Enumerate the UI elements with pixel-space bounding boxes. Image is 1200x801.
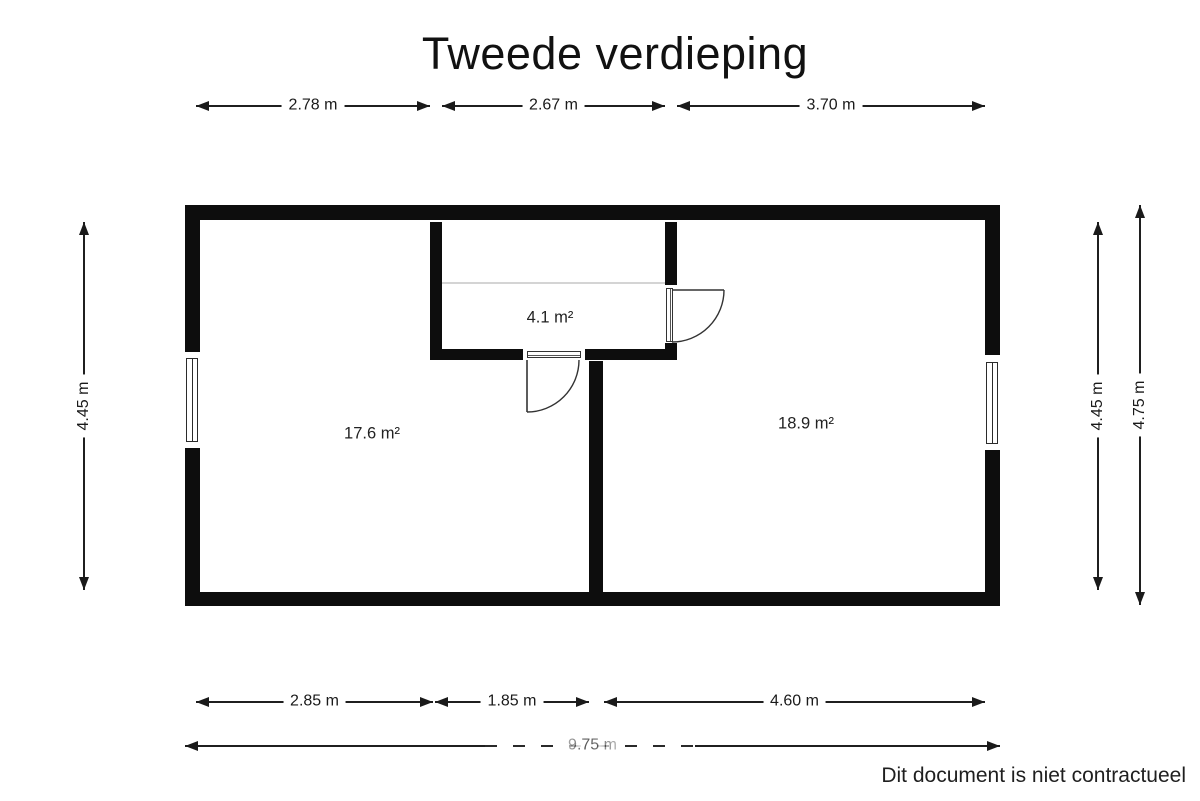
dimension-label: 2.78 m — [282, 97, 345, 115]
door-arc-right — [672, 290, 724, 342]
room-area-label-right: 18.9 m² — [778, 415, 834, 434]
dimension-right-inner-height: 4.45 m — [1093, 222, 1103, 590]
door-swing-layer — [0, 0, 1200, 801]
dimension-label: 4.45 m — [1089, 375, 1107, 438]
dimension-label: 4.75 m — [1131, 374, 1149, 437]
room-area-label-small: 4.1 m² — [527, 309, 574, 328]
floor-plan-page: Tweede verdieping 17.6 m² 4.1 m² 18.9 m²… — [0, 0, 1200, 801]
dimension-right-outer-height: 4.75 m — [1135, 205, 1145, 605]
dimension-label: 2.67 m — [522, 97, 585, 115]
dimension-label: 3.70 m — [800, 97, 863, 115]
dimension-left-height: 4.45 m — [79, 222, 89, 590]
dimension-top-2: 2.67 m — [442, 101, 665, 111]
dimension-label: 2.85 m — [283, 693, 346, 711]
dimension-label: 4.45 m — [75, 375, 93, 438]
dimension-total-width: 9.75 m — [185, 741, 1000, 751]
dimension-label-total: 9.75 m — [561, 737, 624, 755]
dimension-bottom-3: 4.60 m — [604, 697, 985, 707]
door-arc-bottom — [527, 360, 579, 412]
dimension-label: 4.60 m — [763, 693, 826, 711]
dimension-top-1: 2.78 m — [196, 101, 430, 111]
dimension-top-3: 3.70 m — [677, 101, 985, 111]
dimension-label: 1.85 m — [481, 693, 544, 711]
dimension-bottom-2: 1.85 m — [435, 697, 589, 707]
disclaimer-text: Dit document is niet contractueel — [881, 764, 1186, 788]
dimension-bottom-1: 2.85 m — [196, 697, 433, 707]
room-area-label-left: 17.6 m² — [344, 425, 400, 444]
